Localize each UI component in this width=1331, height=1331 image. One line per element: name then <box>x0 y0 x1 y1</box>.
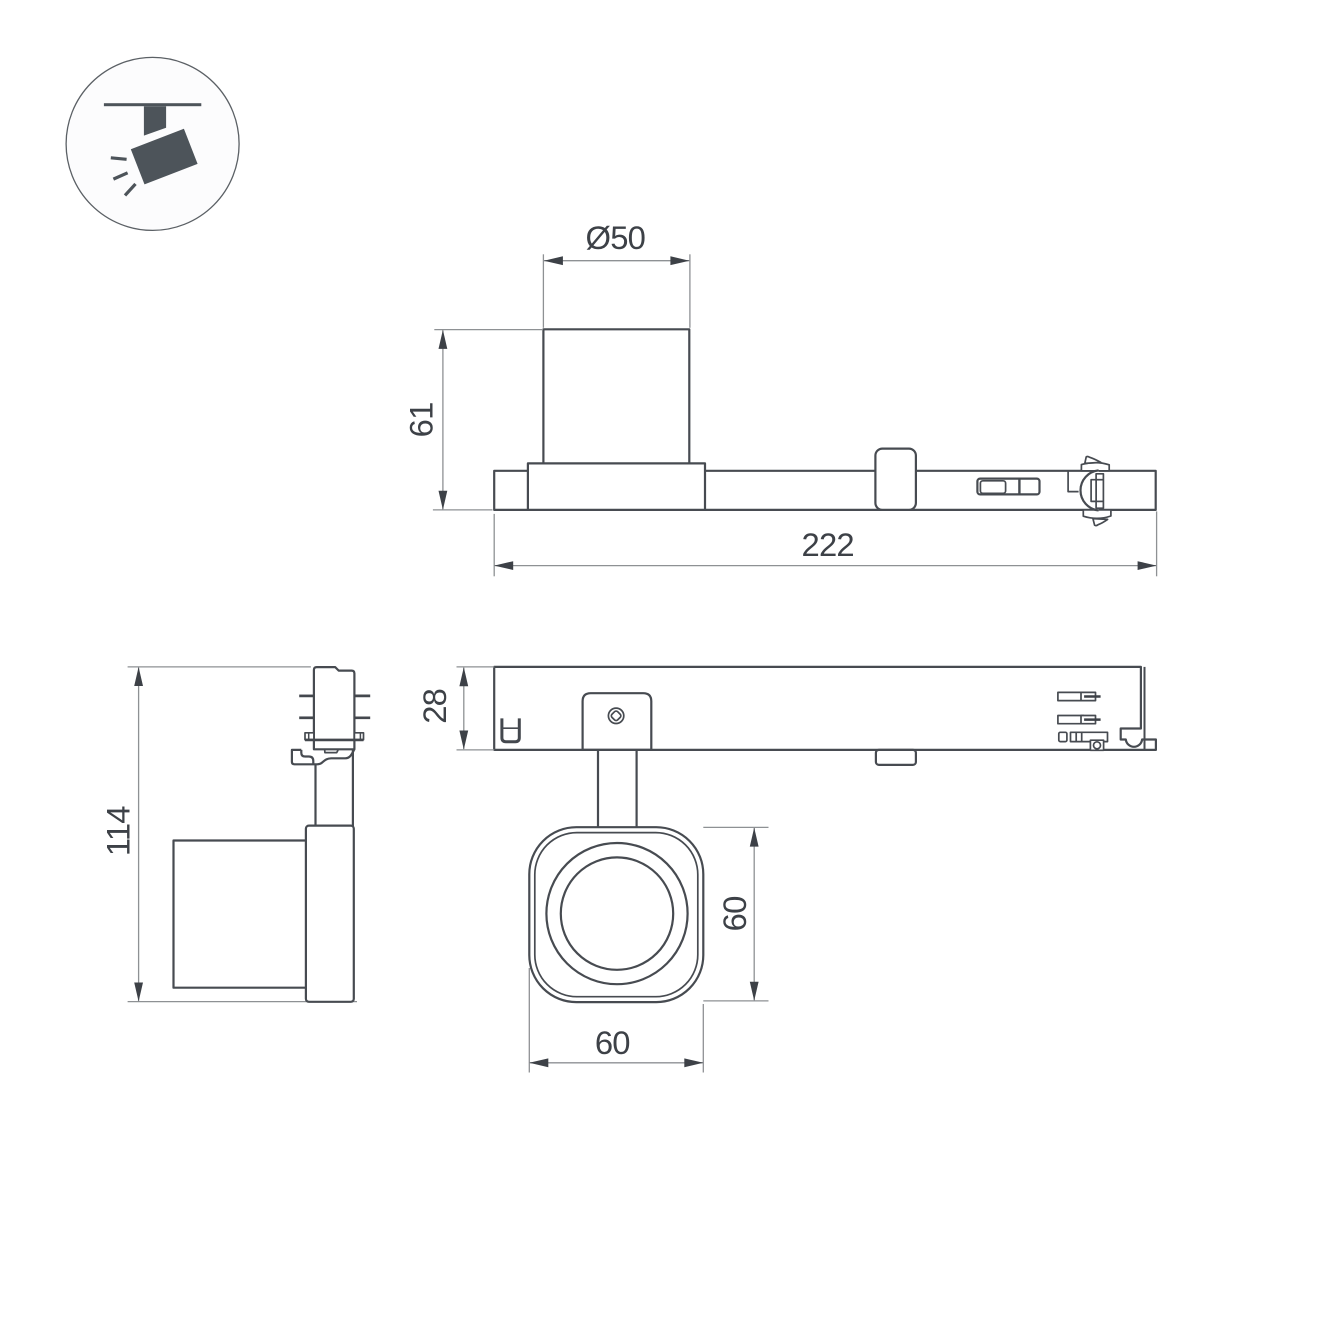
svg-text:114: 114 <box>99 806 136 856</box>
svg-text:60: 60 <box>595 1024 630 1061</box>
svg-text:61: 61 <box>402 402 439 437</box>
svg-text:28: 28 <box>416 689 453 724</box>
svg-text:60: 60 <box>716 896 753 931</box>
svg-text:Ø50: Ø50 <box>586 219 646 256</box>
svg-text:222: 222 <box>802 526 854 563</box>
